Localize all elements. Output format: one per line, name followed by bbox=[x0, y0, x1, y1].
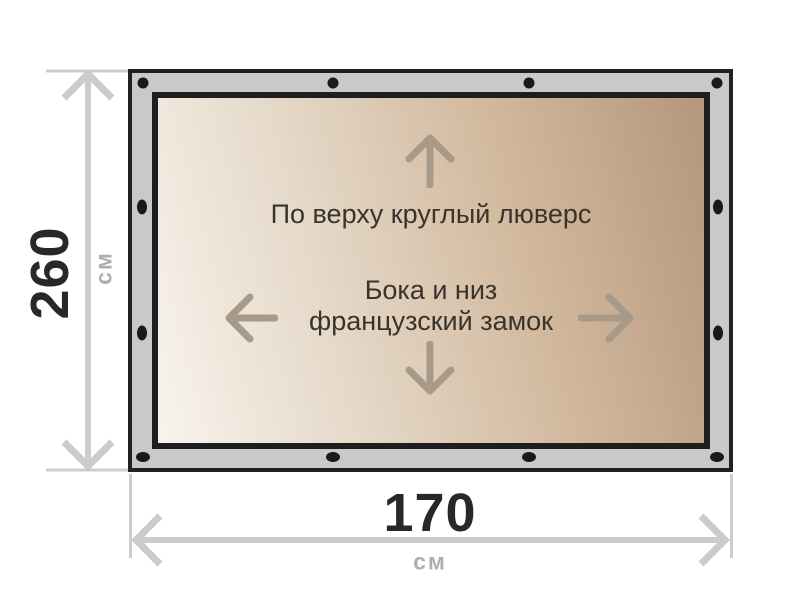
width-value-label: 170 bbox=[383, 482, 476, 544]
tarp-diagram: По верху круглый люверс Бока и низ франц… bbox=[0, 0, 800, 600]
annotation-sides-lock: Бока и низ французский замок bbox=[152, 275, 710, 337]
annotation-top-grommet: По верху круглый люверс bbox=[152, 199, 710, 230]
annotation-sides-lock-line2: французский замок bbox=[152, 306, 710, 337]
annotation-sides-lock-line1: Бока и низ bbox=[152, 275, 710, 306]
tarp-fabric bbox=[152, 92, 710, 449]
grommet-dot bbox=[328, 78, 339, 89]
grommet-dot bbox=[713, 200, 723, 215]
grommet-dot bbox=[326, 452, 340, 462]
height-value-label: 260 bbox=[19, 226, 81, 319]
grommet-dot bbox=[712, 78, 723, 89]
grommet-dot bbox=[136, 452, 150, 462]
grommet-dot bbox=[524, 78, 535, 89]
grommet-dot bbox=[713, 326, 723, 341]
height-unit-label: см bbox=[91, 251, 118, 285]
width-unit-label: см bbox=[413, 549, 447, 576]
grommet-dot bbox=[522, 452, 536, 462]
grommet-dot bbox=[710, 452, 724, 462]
grommet-dot bbox=[137, 326, 147, 341]
grommet-dot bbox=[138, 78, 149, 89]
grommet-dot bbox=[137, 200, 147, 215]
